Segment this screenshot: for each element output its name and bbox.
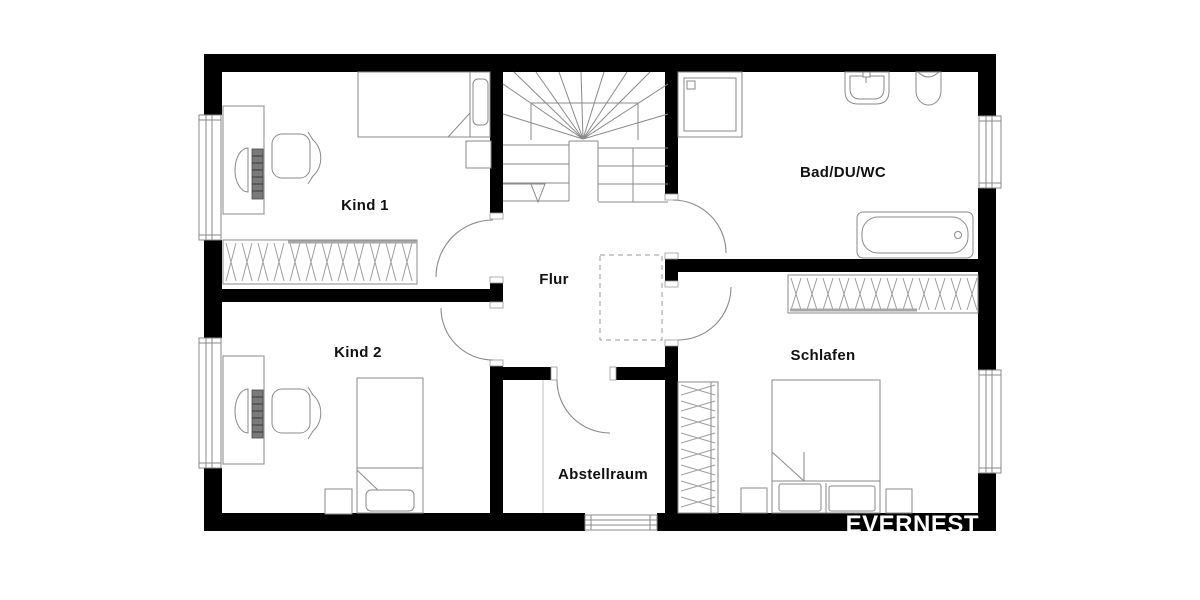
room-label-abstellraum: Abstellraum [558, 466, 648, 483]
window-bad [976, 116, 1002, 188]
wardrobe-icon [678, 382, 718, 513]
room-label-kind2: Kind 2 [334, 344, 382, 361]
nightstand-icon [741, 488, 767, 513]
room-label-bad: Bad/DU/WC [800, 164, 886, 181]
single-bed-icon [357, 378, 423, 513]
brand-watermark: EVERNEST [846, 511, 979, 538]
toilet-icon [916, 72, 941, 105]
door-swing-kind2 [441, 308, 493, 360]
single-bed-icon [358, 72, 490, 137]
staircase-icon [503, 72, 668, 202]
floor-plan-drawing: Kind 1 Kind 2 Flur Abstellraum Bad/DU/WC… [0, 0, 1200, 600]
office-chair-icon [272, 387, 321, 439]
flur-dashed-opening [600, 255, 662, 340]
nightstand-icon [325, 489, 352, 514]
floor-plan-canvas: Kind 1 Kind 2 Flur Abstellraum Bad/DU/WC… [0, 0, 1200, 600]
desk-icon [223, 356, 264, 464]
door-jambs [490, 194, 678, 380]
window-kind1 [198, 115, 224, 240]
stair-direction-arrow [531, 184, 545, 202]
office-chair-icon [272, 132, 321, 184]
window-abstellraum [585, 512, 657, 532]
nightstand-icon [886, 489, 912, 513]
washbasin-icon [845, 72, 889, 104]
window-kind2 [198, 338, 224, 468]
window-schlafen [976, 370, 1002, 473]
door-swing-kind1 [436, 220, 493, 277]
schlafen-furniture [678, 275, 978, 513]
kind1-furniture [223, 72, 491, 284]
door-swing-abstellraum [557, 380, 610, 433]
bathtub-icon [857, 212, 973, 258]
double-bed-icon [772, 380, 880, 513]
wardrobe-icon [223, 240, 417, 284]
room-label-flur: Flur [539, 271, 569, 288]
door-swing-bad [673, 200, 726, 253]
nightstand-icon [466, 141, 491, 168]
room-label-kind1: Kind 1 [341, 197, 389, 214]
room-label-schlafen: Schlafen [791, 347, 856, 364]
wardrobe-icon [788, 275, 978, 313]
kind2-furniture [223, 356, 423, 514]
desk-icon [223, 106, 264, 214]
door-swing-schlafen [678, 287, 731, 340]
shower-icon [678, 72, 742, 137]
